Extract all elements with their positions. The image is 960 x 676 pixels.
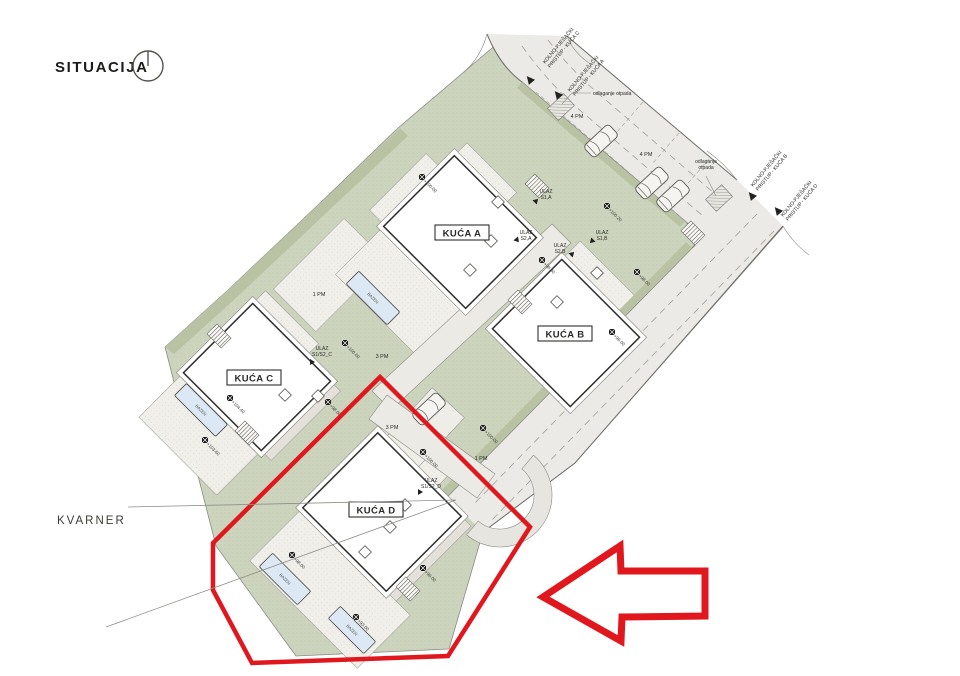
- house-label-B: KUĆA B: [538, 326, 592, 341]
- svg-text:3 PM: 3 PM: [376, 354, 389, 360]
- parking-label-4pm-2: 4 PM: [640, 152, 653, 158]
- entrance-label-s2a: ULAZS2,A: [520, 230, 533, 242]
- svg-text:KUĆA D: KUĆA D: [357, 505, 396, 517]
- svg-text:KUĆA B: KUĆA B: [546, 329, 585, 341]
- svg-text:1 PM: 1 PM: [313, 292, 326, 298]
- svg-text:4 PM: 4 PM: [571, 114, 584, 120]
- entrance-label-s1a: ULAZS1,A: [540, 189, 553, 201]
- house-label-D: KUĆA D: [349, 502, 403, 517]
- svg-text:otpada: otpada: [698, 165, 714, 171]
- svg-text:S1,A: S1,A: [541, 195, 553, 201]
- entrance-label-s2b: ULAZS2,B: [554, 243, 567, 255]
- svg-text:1 PM: 1 PM: [475, 456, 488, 462]
- house-label-A: KUĆA A: [435, 225, 489, 240]
- svg-text:KUĆA A: KUĆA A: [443, 228, 482, 240]
- svg-text:KUĆA C: KUĆA C: [235, 373, 274, 385]
- house-label-C: KUĆA C: [227, 370, 281, 385]
- sea-label: KVARNER: [57, 515, 126, 527]
- parking-label-3pm-2: 3 PM: [386, 425, 399, 431]
- red-arrow-icon: [543, 546, 705, 641]
- svg-text:odlaganje otpada: odlaganje otpada: [593, 91, 632, 97]
- parking-label-3pm-1: 3 PM: [376, 354, 389, 360]
- site-plan-canvas: BAZENBAZENBAZENBAZEN +100.00+100.20+98.0…: [0, 0, 960, 676]
- svg-text:S2,A: S2,A: [521, 236, 533, 242]
- parking-label-1pm-1: 1 PM: [313, 292, 326, 298]
- svg-text:S2,B: S2,B: [555, 249, 567, 255]
- svg-text:4 PM: 4 PM: [640, 152, 653, 158]
- svg-text:S1,B: S1,B: [597, 236, 609, 242]
- svg-text:S1/S2_D: S1/S2_D: [421, 484, 441, 490]
- waste-label-1: odlaganje otpada: [593, 91, 632, 97]
- svg-text:S1/S2_C: S1/S2_C: [312, 352, 332, 358]
- parking-label-4pm-1: 4 PM: [571, 114, 584, 120]
- entrance-label-s1b: ULAZS1,B: [596, 230, 609, 242]
- svg-text:3 PM: 3 PM: [386, 425, 399, 431]
- access-label-kuca-d: KOLNO-PJEŠAČKIPRISTUP - KUĆA D: [779, 178, 819, 222]
- access-label-kuca-b: KOLNO-PJEŠAČKIPRISTUP - KUĆA B: [749, 148, 789, 192]
- parking-label-1pm-2: 1 PM: [475, 456, 488, 462]
